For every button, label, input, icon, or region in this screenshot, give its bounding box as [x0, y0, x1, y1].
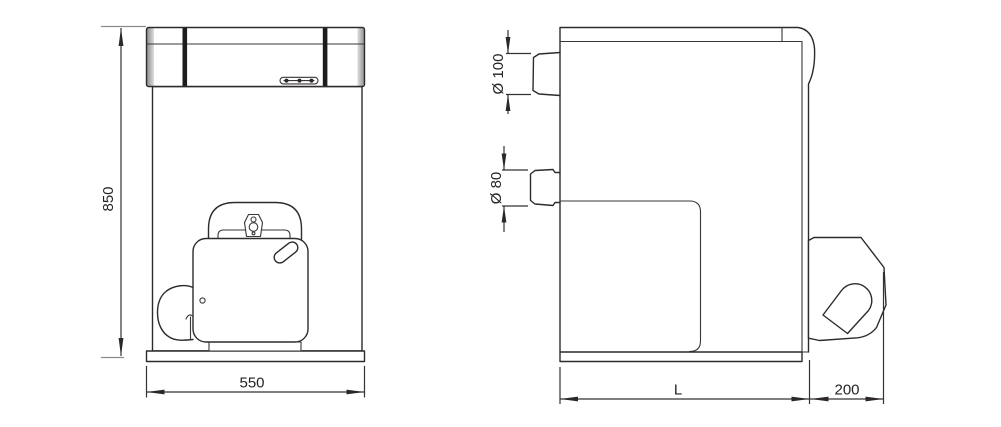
arrow-down-icon: [119, 338, 124, 356]
depth-dimension-label: L: [674, 382, 682, 399]
arrow-up-icon: [502, 206, 507, 223]
width-dimension-label: 550: [239, 375, 264, 392]
burner-projection-label: 200: [834, 382, 859, 399]
flue-diameter-label: Ø 100: [490, 54, 507, 95]
arrow-up-icon: [119, 28, 124, 46]
pipe-diameter-label: Ø 80: [488, 172, 505, 205]
latch-hole: [200, 298, 205, 303]
front-view: 850 550: [100, 27, 365, 398]
panel-left-shade: [147, 28, 154, 86]
indicator-lights: [280, 77, 318, 84]
boiler-dimension-drawing: 850 550: [0, 0, 1001, 427]
pipe-diameter-dimension: Ø 80: [488, 146, 528, 232]
door-hinge-bracket: [245, 215, 263, 237]
burner-air-scroll: [158, 286, 194, 341]
control-panel: [147, 28, 365, 87]
technical-drawing-canvas: 850 550: [0, 0, 1001, 427]
side-depth-dimension: L: [560, 360, 810, 404]
arrow-down-icon: [502, 154, 507, 171]
burner-pedestal: [209, 342, 301, 351]
arrow-up-icon: [506, 95, 511, 112]
panel-right-shade: [358, 28, 365, 86]
panel-divider-right: [323, 28, 328, 87]
arrow-left-icon: [560, 397, 578, 402]
base-plinth-front: [147, 351, 365, 362]
arrow-down-icon: [506, 37, 511, 54]
panel-divider-left: [183, 28, 188, 87]
arrow-right-icon: [347, 390, 365, 395]
arrow-right-icon: [792, 397, 810, 402]
height-dimension-label: 850: [100, 186, 117, 211]
front-width-dimension: 550: [147, 366, 365, 398]
front-height-dimension: 850: [100, 27, 146, 358]
flue-diameter-dimension: Ø 100: [490, 30, 531, 114]
boiler-body-side-fill: [560, 28, 815, 353]
arrow-left-icon: [811, 397, 829, 402]
pipe-stub: [531, 170, 561, 206]
flue-stub: [533, 53, 560, 96]
burner-side: [809, 238, 887, 341]
arrow-right-icon: [866, 397, 884, 402]
base-plinth-side: [560, 352, 802, 362]
side-view: Ø 100 Ø 80 L 200: [488, 28, 886, 405]
arrow-left-icon: [147, 390, 165, 395]
